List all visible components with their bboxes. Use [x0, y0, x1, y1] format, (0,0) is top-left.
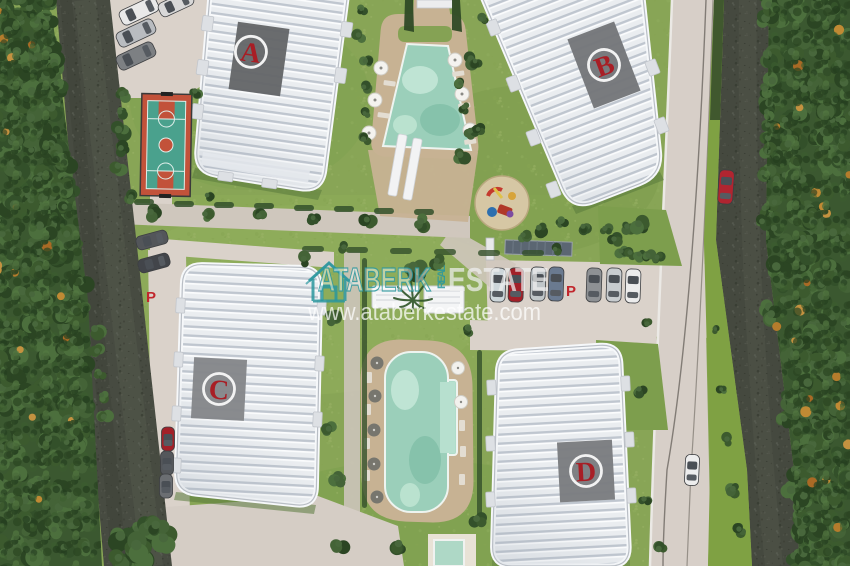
- svg-text:www.ataberkestate.com: www.ataberkestate.com: [307, 299, 541, 326]
- svg-text:ATABERK: ATABERK: [318, 261, 431, 298]
- svg-text:REAL: REAL: [436, 265, 448, 289]
- svg-text:P: P: [146, 289, 156, 306]
- svg-text:D: D: [575, 456, 597, 488]
- svg-text:C: C: [208, 374, 230, 406]
- svg-text:P: P: [566, 283, 576, 300]
- svg-text:ESTATE: ESTATE: [448, 261, 549, 298]
